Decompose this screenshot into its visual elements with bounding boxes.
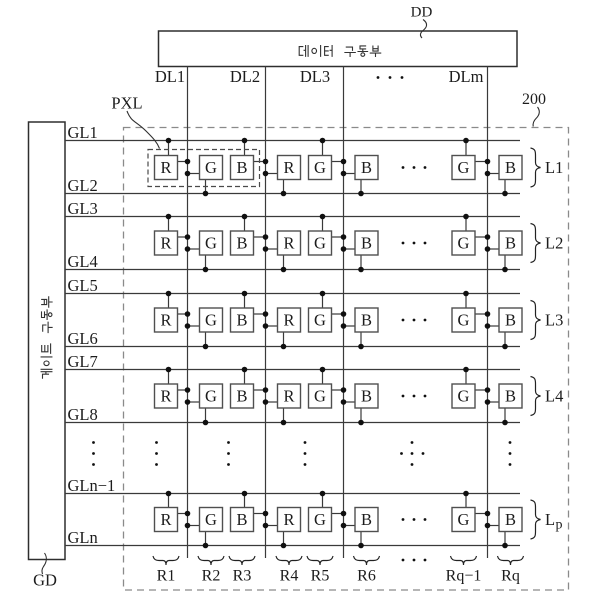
svg-text:B: B [505,234,516,253]
svg-text:DL1: DL1 [155,67,185,86]
svg-text:GL3: GL3 [68,199,98,218]
svg-text:G: G [314,510,326,529]
svg-text:R: R [283,158,294,177]
svg-text:PXL: PXL [111,94,142,113]
svg-text:R: R [283,234,294,253]
svg-text:B: B [236,234,247,253]
svg-text:p: p [556,518,563,533]
svg-text:GD: GD [33,571,57,590]
svg-text:GLn: GLn [68,528,98,547]
svg-text:L4: L4 [545,387,563,406]
svg-text:R5: R5 [311,568,330,585]
svg-text:R: R [160,387,171,406]
svg-text:R4: R4 [280,568,299,585]
svg-text:G: G [314,311,326,330]
svg-text:B: B [236,387,247,406]
svg-text:R: R [283,387,294,406]
svg-text:DLm: DLm [449,67,484,86]
svg-text:B: B [361,311,372,330]
svg-text:GL7: GL7 [68,352,98,371]
svg-text:GL5: GL5 [68,276,98,295]
svg-text:R3: R3 [233,568,252,585]
svg-text:Rq−1: Rq−1 [446,568,482,585]
svg-text:GL8: GL8 [68,405,98,424]
svg-text:B: B [361,387,372,406]
svg-text:G: G [314,158,326,177]
svg-text:G: G [458,387,470,406]
svg-text:R: R [160,234,171,253]
svg-text:B: B [236,510,247,529]
svg-text:B: B [361,234,372,253]
svg-text:L2: L2 [545,234,563,253]
svg-text:G: G [458,234,470,253]
svg-text:B: B [236,311,247,330]
svg-text:R: R [160,158,171,177]
svg-text:G: G [314,387,326,406]
svg-text:B: B [505,387,516,406]
svg-text:R: R [160,510,171,529]
svg-text:B: B [361,158,372,177]
svg-text:G: G [458,158,470,177]
svg-text:Rq: Rq [501,568,520,585]
svg-text:B: B [236,158,247,177]
svg-text:DL2: DL2 [230,67,260,86]
svg-text:L: L [545,510,555,529]
svg-text:B: B [361,510,372,529]
svg-text:DD: DD [411,5,433,21]
svg-text:B: B [505,510,516,529]
svg-text:R: R [160,311,171,330]
svg-text:GL2: GL2 [68,176,98,195]
svg-text:R6: R6 [357,568,376,585]
svg-text:R1: R1 [157,568,176,585]
svg-text:G: G [205,234,217,253]
svg-text:G: G [458,510,470,529]
svg-text:G: G [205,387,217,406]
svg-text:G: G [205,158,217,177]
svg-text:G: G [314,234,326,253]
svg-text:R: R [283,311,294,330]
svg-text:GLn−1: GLn−1 [68,476,116,495]
svg-text:DL3: DL3 [300,67,330,86]
svg-text:G: G [205,311,217,330]
svg-text:B: B [505,158,516,177]
svg-text:B: B [505,311,516,330]
svg-text:GL1: GL1 [68,123,98,142]
svg-text:L3: L3 [545,311,563,330]
svg-text:GL6: GL6 [68,329,98,348]
svg-text:G: G [205,510,217,529]
svg-text:200: 200 [522,91,546,108]
svg-text:GL4: GL4 [68,252,98,271]
svg-text:R: R [283,510,294,529]
svg-text:G: G [458,311,470,330]
svg-text:R2: R2 [202,568,221,585]
svg-text:L1: L1 [545,158,563,177]
